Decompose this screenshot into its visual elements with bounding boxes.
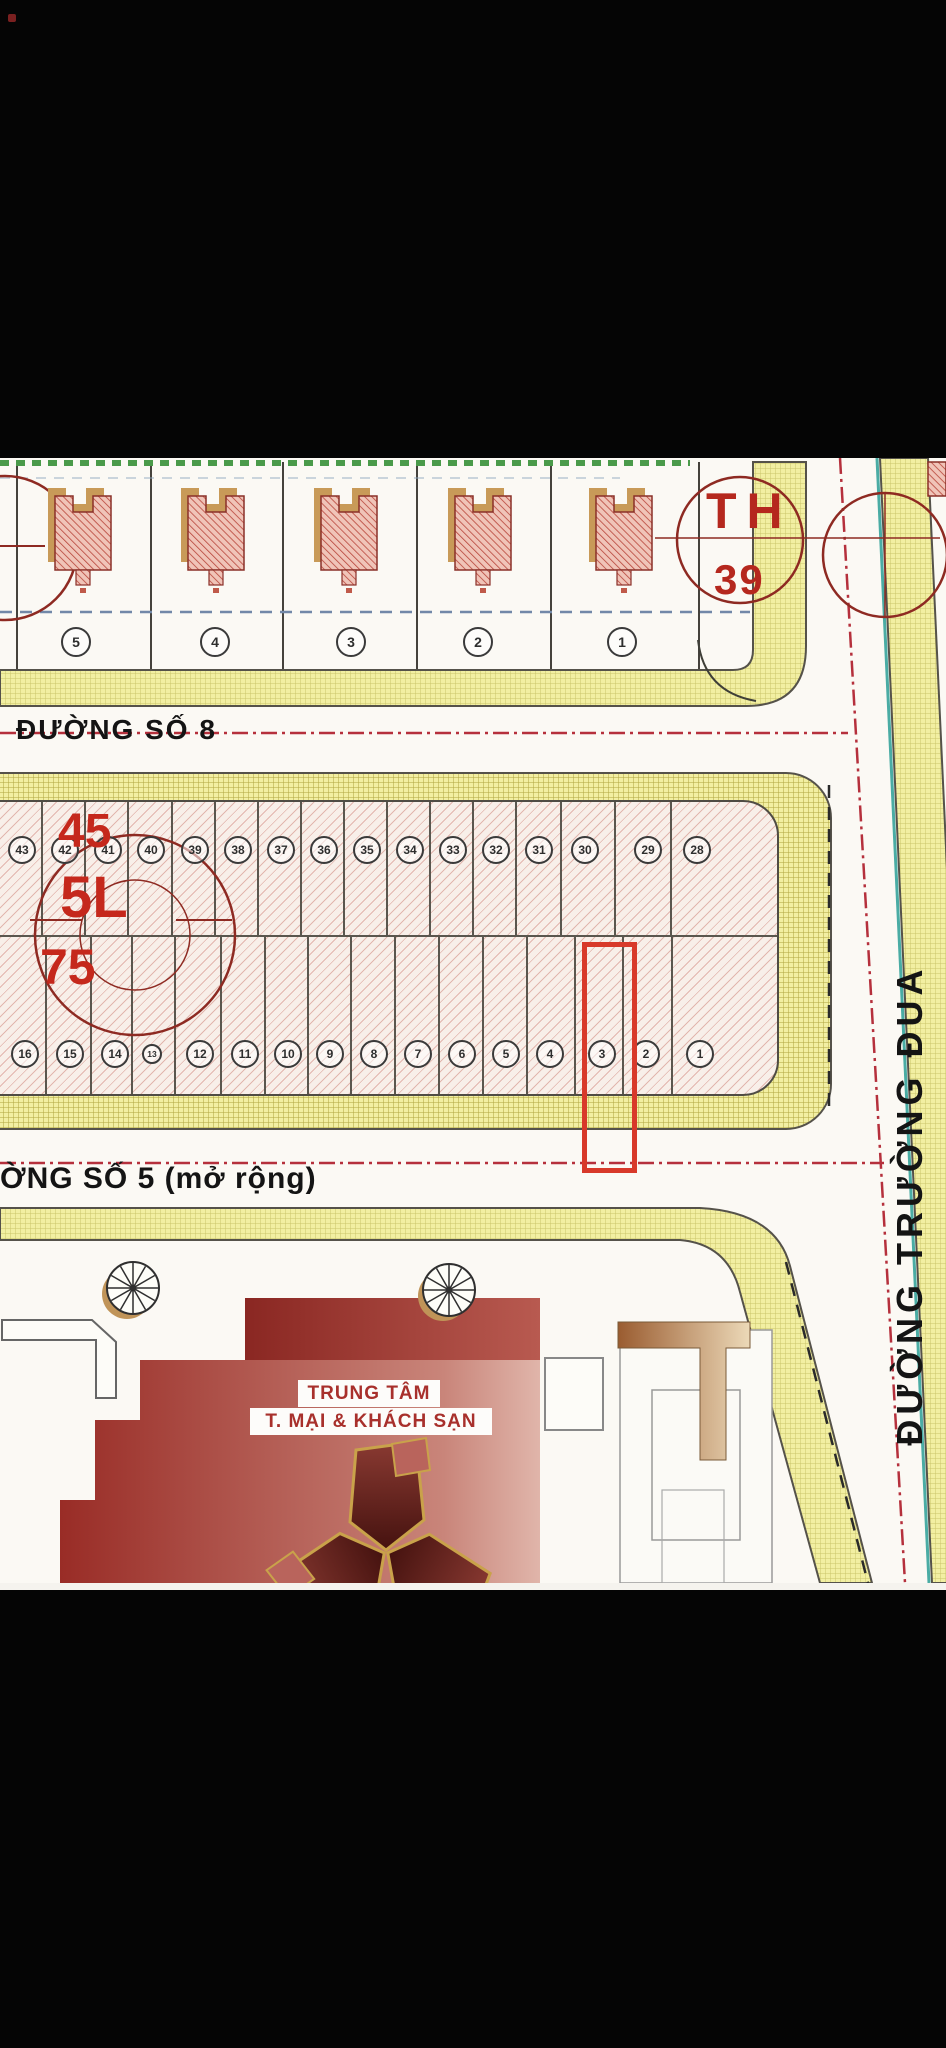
- east-road-label: ĐƯỜNG TRƯỜNG ĐUA: [890, 895, 930, 1515]
- plot-number-circle: 4: [536, 1040, 564, 1068]
- plot-divider: [307, 937, 309, 1094]
- road8-label: ĐƯỜNG SỐ 8: [16, 714, 217, 746]
- plot-divider: [472, 802, 474, 937]
- hotel-building-top: [245, 1298, 540, 1360]
- curb-dashed-hotel: [786, 1262, 868, 1583]
- plot-divider: [214, 802, 216, 937]
- plot-number-circle: 2: [463, 627, 493, 657]
- plot-number-circle: 39: [181, 836, 209, 864]
- annotation-circle-right: [823, 493, 946, 617]
- tan-wall: [618, 1322, 750, 1460]
- plot-divider: [264, 937, 266, 1094]
- plot-divider: [41, 802, 43, 937]
- annotation-75: 75: [40, 938, 96, 996]
- east-building: [620, 1330, 772, 1583]
- plot-number-circle: 7: [404, 1040, 432, 1068]
- site-plan-map: ĐƯỜNG SỐ 8 ỜNG SỐ 5 (mở rộng) ĐƯỜNG TRƯỜ…: [0, 458, 946, 1583]
- plot-number-circle: 13: [142, 1044, 162, 1064]
- plot-number-circle: 29: [634, 836, 662, 864]
- plot-divider: [429, 802, 431, 937]
- corner-red-dot: [8, 14, 16, 22]
- plot-number-circle: 34: [396, 836, 424, 864]
- hotel-name-line1: TRUNG TÂM: [298, 1380, 440, 1407]
- plot-number-circle: 28: [683, 836, 711, 864]
- left-step-structure: [2, 1320, 116, 1398]
- plot-divider: [670, 802, 672, 937]
- plot-divider: [16, 462, 18, 670]
- plot-divider: [526, 937, 528, 1094]
- hotel-name-line2: T. MẠI & KHÁCH SẠN: [250, 1408, 492, 1435]
- plot-divider: [482, 937, 484, 1094]
- plot-number-circle: 38: [224, 836, 252, 864]
- plot-number-circle: 35: [353, 836, 381, 864]
- plot-divider: [550, 462, 552, 670]
- villa-footprint: [48, 488, 111, 593]
- plot-number-circle: 8: [360, 1040, 388, 1068]
- villa-footprint: [589, 488, 652, 593]
- east-building-inner-2: [662, 1490, 724, 1583]
- plot-number-circle: 3: [336, 627, 366, 657]
- plot-number-circle: 12: [186, 1040, 214, 1068]
- annotation-5l: 5L: [60, 864, 128, 931]
- plot-divider: [150, 462, 152, 670]
- plot-divider: [174, 937, 176, 1094]
- wheel-icon: [102, 1262, 159, 1319]
- plot-number-circle: 5: [492, 1040, 520, 1068]
- plot-divider: [257, 802, 259, 937]
- annotation-th: TH: [706, 482, 793, 540]
- plot-number-circle: 10: [274, 1040, 302, 1068]
- plot-number-circle: 30: [571, 836, 599, 864]
- plot-number-circle: 43: [8, 836, 36, 864]
- corner-curb-curve: [698, 640, 756, 701]
- plot-number-circle: 14: [101, 1040, 129, 1068]
- screenshot-root: { "streets": { "road8": "ĐƯỜNG SỐ 8", "r…: [0, 0, 946, 2048]
- side-wing: [545, 1358, 603, 1430]
- plot-divider: [394, 937, 396, 1094]
- plot-number-circle: 33: [439, 836, 467, 864]
- plot-divider: [698, 462, 700, 670]
- plot-number-circle: 5: [61, 627, 91, 657]
- plot-divider: [343, 802, 345, 937]
- plot-divider: [515, 802, 517, 937]
- plot-divider: [300, 802, 302, 937]
- plot-number-circle: 1: [607, 627, 637, 657]
- plot-divider: [220, 937, 222, 1094]
- plot-divider: [386, 802, 388, 937]
- block-middle-divider: [0, 935, 777, 937]
- bottom-white-strip: [0, 1583, 946, 1590]
- plot-number-circle: 6: [448, 1040, 476, 1068]
- plot-divider: [350, 937, 352, 1094]
- annotation-39: 39: [714, 556, 765, 604]
- road8-north-sidewalk: [0, 462, 806, 706]
- plot-divider: [560, 802, 562, 937]
- east-building-inner: [652, 1390, 740, 1540]
- bottom-letterbox-bar: [0, 1590, 946, 2048]
- plot-divider: [131, 937, 133, 1094]
- plot-number-circle: 11: [231, 1040, 259, 1068]
- villa-buildings: [48, 462, 946, 593]
- plot-divider: [614, 802, 616, 937]
- plot-number-circle: 15: [56, 1040, 84, 1068]
- plot-divider: [171, 802, 173, 937]
- plot-divider: [416, 462, 418, 670]
- corner-building-fragment: [928, 462, 946, 496]
- road5-label: ỜNG SỐ 5 (mở rộng): [0, 1162, 317, 1196]
- villa-footprint: [181, 488, 244, 593]
- annotation-45: 45: [58, 804, 111, 859]
- villa-footprint: [314, 488, 377, 593]
- plot-divider: [671, 937, 673, 1094]
- plot-number-circle: 16: [11, 1040, 39, 1068]
- plot-divider: [282, 462, 284, 670]
- plot-number-circle: 36: [310, 836, 338, 864]
- plot-divider: [438, 937, 440, 1094]
- top-letterbox-bar: [0, 0, 946, 458]
- plot-number-circle: 40: [137, 836, 165, 864]
- plot-divider: [574, 937, 576, 1094]
- plot-number-circle: 9: [316, 1040, 344, 1068]
- plot-number-circle: 4: [200, 627, 230, 657]
- annotation-circle-left: [0, 476, 77, 620]
- plot-number-circle: 31: [525, 836, 553, 864]
- highlighted-plot-marker: [582, 942, 637, 1173]
- plot-number-circle: 1: [686, 1040, 714, 1068]
- plot-number-circle: 32: [482, 836, 510, 864]
- villa-footprint: [448, 488, 511, 593]
- plot-number-circle: 37: [267, 836, 295, 864]
